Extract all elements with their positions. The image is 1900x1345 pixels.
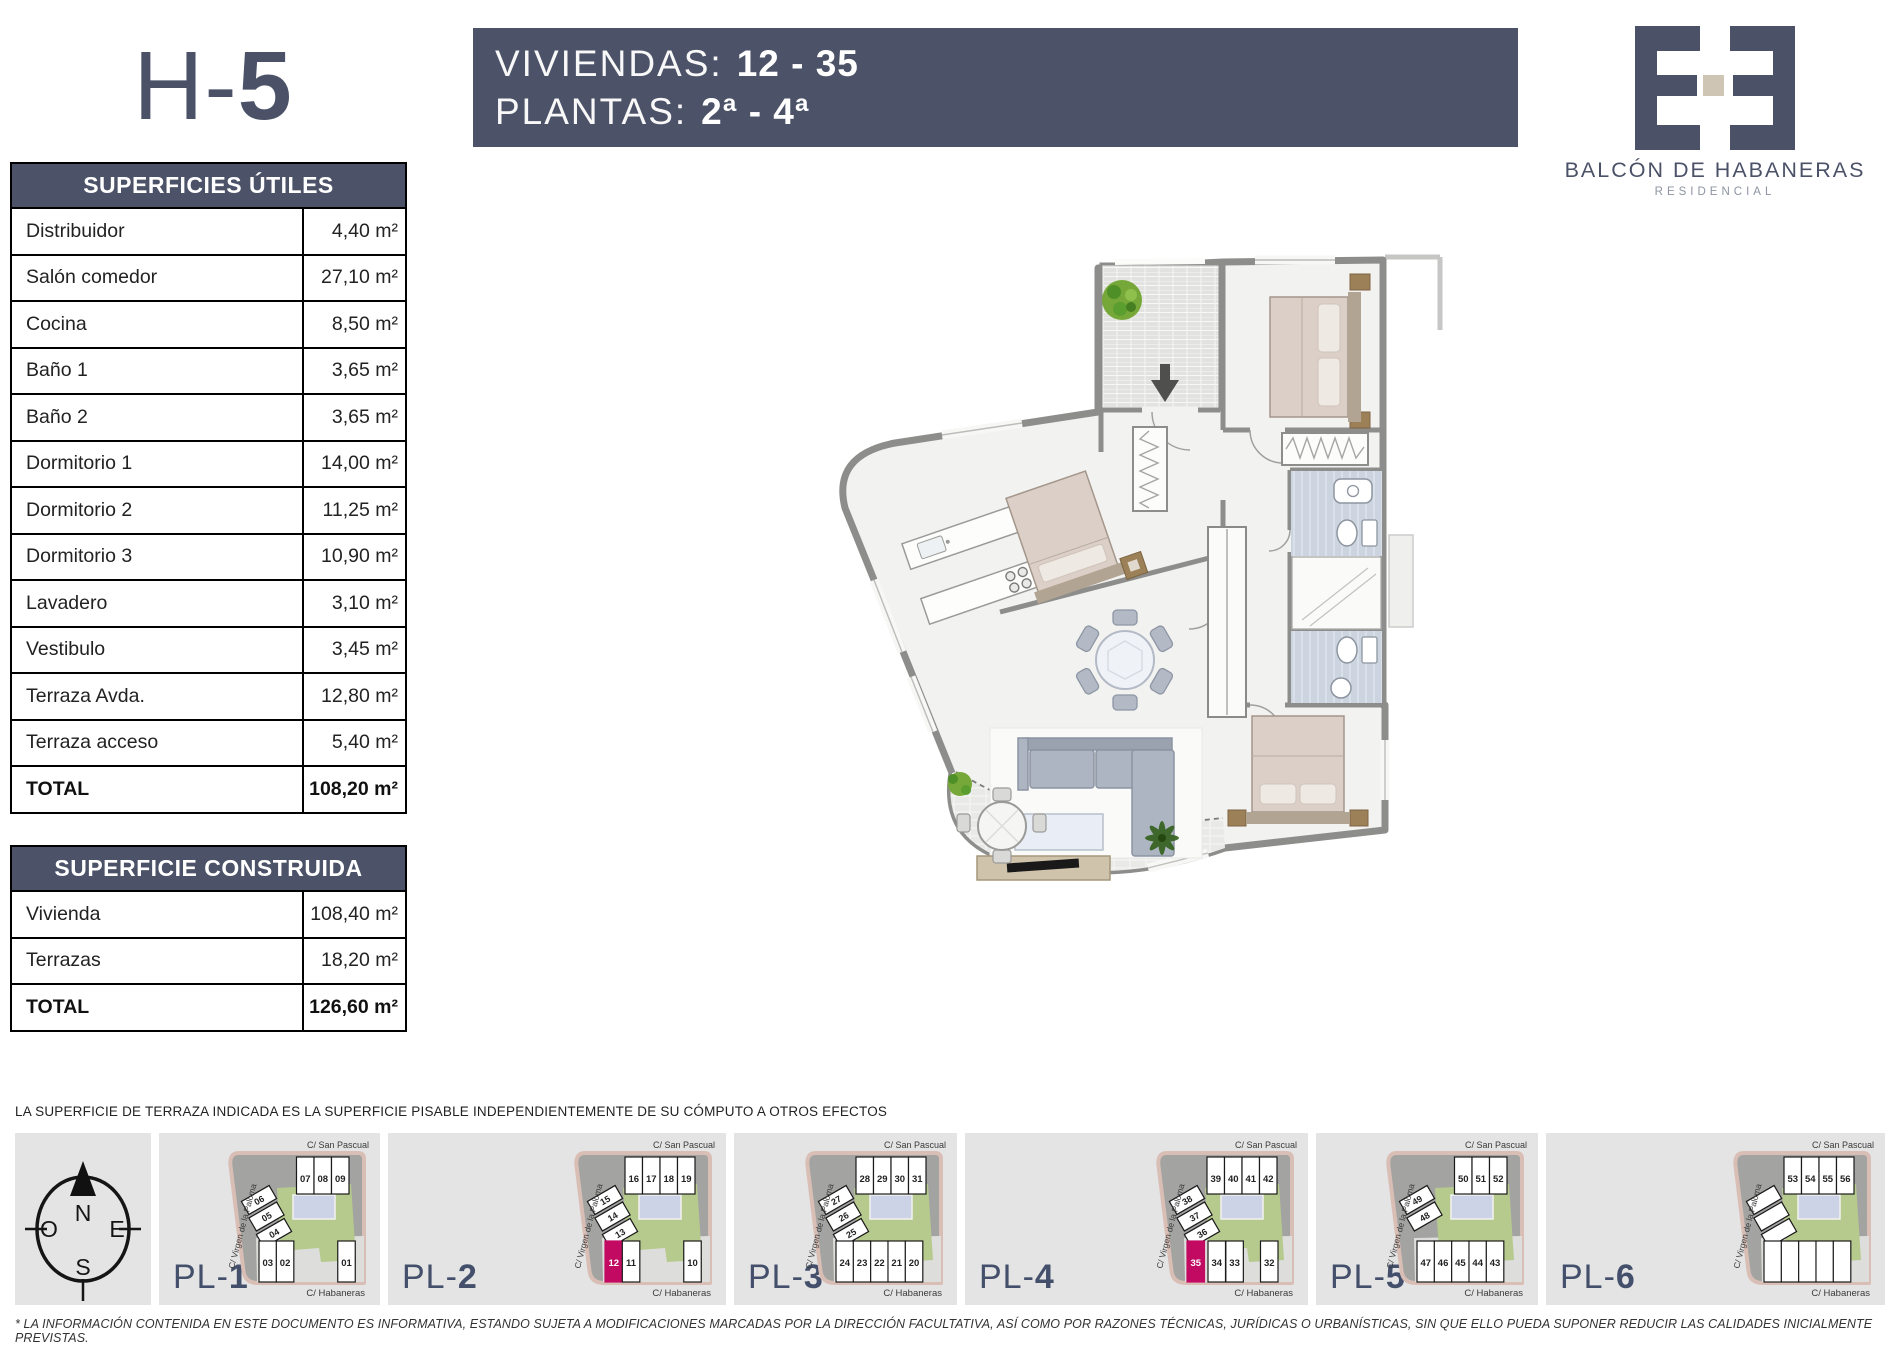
svg-text:24: 24: [839, 1258, 850, 1269]
plantas-label: PLANTAS:: [495, 91, 687, 132]
room-area-value: 10,90 m²: [302, 535, 405, 580]
banner-viviendas: VIVIENDAS:12 - 35: [495, 42, 1518, 86]
room-area-value: 8,50 m²: [302, 302, 405, 347]
svg-text:09: 09: [335, 1174, 346, 1185]
room-area-value: 18,20 m²: [302, 939, 405, 984]
viviendas-value: 12 - 35: [737, 43, 859, 84]
room-label: Salón comedor: [12, 256, 302, 301]
brand-logo-icon: [1635, 26, 1795, 150]
svg-text:33: 33: [1229, 1258, 1240, 1269]
svg-text:E: E: [109, 1216, 124, 1242]
svg-text:19: 19: [681, 1174, 692, 1185]
svg-text:C/ Habaneras: C/ Habaneras: [1464, 1288, 1523, 1299]
svg-text:20: 20: [909, 1258, 920, 1269]
plan-box-pl-3: PL-3 282930312726252423222120C/ San Pasc…: [734, 1133, 957, 1305]
svg-text:42: 42: [1263, 1174, 1274, 1185]
svg-text:21: 21: [891, 1258, 902, 1269]
site-plan-map: 53545556C/ San PascualC/ Virgen de la Pa…: [1728, 1138, 1880, 1300]
svg-text:08: 08: [317, 1174, 328, 1185]
table-row: Terraza acceso 5,40 m²: [12, 719, 405, 766]
svg-text:43: 43: [1490, 1258, 1501, 1269]
adjacent-structures: [1385, 257, 1440, 627]
svg-text:C/ San Pascual: C/ San Pascual: [1465, 1140, 1527, 1150]
table-row: Dormitorio 3 10,90 m²: [12, 533, 405, 580]
svg-text:C/ Habaneras: C/ Habaneras: [1811, 1288, 1870, 1299]
built-areas-table-body: Vivienda 108,40 m² Terrazas 18,20 m² TOT…: [12, 890, 405, 1030]
page-title: H-5: [118, 30, 308, 142]
banner-plantas: PLANTAS:2ª - 4ª: [495, 90, 1518, 134]
disclaimer: * LA INFORMACIÓN CONTENIDA EN ESTE DOCUM…: [15, 1317, 1890, 1345]
useful-areas-table-title: SUPERFICIES ÚTILES: [12, 164, 405, 207]
svg-text:C/ San Pascual: C/ San Pascual: [1235, 1140, 1297, 1150]
svg-text:22: 22: [874, 1258, 885, 1269]
room-label: Dormitorio 3: [12, 535, 302, 580]
header-banner: VIVIENDAS:12 - 35 PLANTAS:2ª - 4ª: [473, 28, 1518, 147]
closet: [1208, 527, 1246, 717]
svg-text:C/ Habaneras: C/ Habaneras: [306, 1288, 365, 1299]
built-areas-table: SUPERFICIE CONSTRUIDA Vivienda 108,40 m²…: [10, 845, 407, 1032]
brand-logo: BALCÓN DE HABANERAS RESIDENCIAL: [1555, 26, 1875, 198]
plan-box-pl-6: PL-6 53545556C/ San PascualC/ Virgen de …: [1546, 1133, 1885, 1305]
hall-wardrobe: [1133, 427, 1167, 511]
room-label: Terraza acceso: [12, 721, 302, 766]
tree-icon: [1102, 280, 1142, 320]
svg-text:44: 44: [1472, 1258, 1483, 1269]
svg-text:31: 31: [912, 1174, 923, 1185]
svg-text:40: 40: [1228, 1174, 1239, 1185]
svg-text:01: 01: [341, 1258, 352, 1269]
compass-icon: N O E S: [15, 1133, 151, 1305]
room-label: Vestibulo: [12, 628, 302, 673]
svg-text:C/ San Pascual: C/ San Pascual: [307, 1140, 369, 1150]
svg-text:29: 29: [877, 1174, 888, 1185]
bedroom-1-bed: [1270, 274, 1370, 428]
room-area-value: 3,65 m²: [302, 349, 405, 394]
svg-text:02: 02: [280, 1258, 291, 1269]
plan-box-pl-4: PL-4 3940414238373635343332C/ San Pascua…: [965, 1133, 1308, 1305]
table-row: Distribuidor 4,40 m²: [12, 207, 405, 254]
svg-text:56: 56: [1840, 1174, 1851, 1185]
room-label: TOTAL: [12, 767, 302, 812]
room-label: TOTAL: [12, 985, 302, 1030]
title-prefix: H-: [133, 31, 237, 140]
room-area-value: 3,45 m²: [302, 628, 405, 673]
table-row: Salón comedor 27,10 m²: [12, 254, 405, 301]
svg-text:55: 55: [1822, 1174, 1833, 1185]
room-area-value: 108,20 m²: [302, 767, 405, 812]
svg-text:C/ Habaneras: C/ Habaneras: [652, 1288, 711, 1299]
plan-label: PL-6: [1560, 1258, 1636, 1297]
viviendas-label: VIVIENDAS:: [495, 43, 723, 84]
room-label: Terraza Avda.: [12, 674, 302, 719]
room-area-value: 126,60 m²: [302, 985, 405, 1030]
svg-text:45: 45: [1455, 1258, 1466, 1269]
room-area-value: 12,80 m²: [302, 674, 405, 719]
svg-text:50: 50: [1458, 1174, 1469, 1185]
room-label: Baño 1: [12, 349, 302, 394]
svg-text:17: 17: [646, 1174, 657, 1185]
svg-text:32: 32: [1264, 1258, 1275, 1269]
room-label: Dormitorio 2: [12, 488, 302, 533]
palm-icon: [1145, 821, 1179, 855]
table-row: Terrazas 18,20 m²: [12, 937, 405, 984]
site-plan-map: 070809060504030201C/ San PascualC/ Virge…: [223, 1138, 375, 1300]
room-label: Vivienda: [12, 892, 302, 937]
plan-label: PL-4: [979, 1258, 1055, 1297]
plantas-value: 2ª - 4ª: [701, 91, 809, 132]
svg-text:47: 47: [1420, 1258, 1431, 1269]
room-area-value: 3,65 m²: [302, 395, 405, 440]
brand-subtitle: RESIDENCIAL: [1555, 186, 1875, 198]
coffee-table: [1015, 814, 1103, 850]
svg-text:53: 53: [1787, 1174, 1798, 1185]
bathroom-1: [1291, 471, 1382, 556]
room-label: Baño 2: [12, 395, 302, 440]
useful-areas-table: SUPERFICIES ÚTILES Distribuidor 4,40 m² …: [10, 162, 407, 814]
site-plan-map: 16171819151413121110C/ San PascualC/ Vir…: [569, 1138, 721, 1300]
plan-box-pl-1: PL-1 070809060504030201C/ San PascualC/ …: [159, 1133, 380, 1305]
room-area-value: 3,10 m²: [302, 581, 405, 626]
bush-icon: [948, 772, 972, 796]
svg-text:O: O: [40, 1216, 58, 1242]
room-area-value: 5,40 m²: [302, 721, 405, 766]
floor-plan: [690, 200, 1450, 900]
plan-label: PL-2: [402, 1258, 478, 1297]
plan-box-pl-5: PL-5 50515249484746454443C/ San PascualC…: [1316, 1133, 1538, 1305]
shower: [1292, 557, 1381, 629]
table-row: Baño 1 3,65 m²: [12, 347, 405, 394]
svg-text:12: 12: [608, 1258, 619, 1269]
table-row: TOTAL 126,60 m²: [12, 983, 405, 1030]
svg-text:03: 03: [262, 1258, 273, 1269]
svg-text:39: 39: [1210, 1174, 1221, 1185]
svg-text:C/ San Pascual: C/ San Pascual: [884, 1140, 946, 1150]
svg-text:C/ San Pascual: C/ San Pascual: [1812, 1140, 1874, 1150]
site-plan-map: 50515249484746454443C/ San PascualC/ Vir…: [1381, 1138, 1533, 1300]
terrace-note: LA SUPERFICIE DE TERRAZA INDICADA ES LA …: [15, 1104, 887, 1119]
room-area-value: 4,40 m²: [302, 209, 405, 254]
room-label: Dormitorio 1: [12, 442, 302, 487]
svg-text:28: 28: [859, 1174, 870, 1185]
svg-text:07: 07: [300, 1174, 311, 1185]
title-number: 5: [238, 31, 293, 140]
svg-text:34: 34: [1211, 1258, 1222, 1269]
useful-areas-table-body: Distribuidor 4,40 m² Salón comedor 27,10…: [12, 207, 405, 812]
room-label: Lavadero: [12, 581, 302, 626]
site-plan-map: 282930312726252423222120C/ San PascualC/…: [800, 1138, 952, 1300]
room-label: Terrazas: [12, 939, 302, 984]
svg-text:52: 52: [1493, 1174, 1504, 1185]
svg-text:C/ San Pascual: C/ San Pascual: [653, 1140, 715, 1150]
svg-text:10: 10: [687, 1258, 698, 1269]
plan-box-pl-2: PL-2 16171819151413121110C/ San PascualC…: [388, 1133, 726, 1305]
terrace-access: [1101, 261, 1220, 410]
svg-text:46: 46: [1438, 1258, 1449, 1269]
brand-name: BALCÓN DE HABANERAS: [1555, 158, 1875, 183]
room-area-value: 11,25 m²: [302, 488, 405, 533]
table-row: Cocina 8,50 m²: [12, 300, 405, 347]
svg-text:35: 35: [1190, 1258, 1201, 1269]
table-row: Vestibulo 3,45 m²: [12, 626, 405, 673]
table-row: Dormitorio 1 14,00 m²: [12, 440, 405, 487]
built-areas-table-title: SUPERFICIE CONSTRUIDA: [12, 847, 405, 890]
wardrobe: [1282, 433, 1368, 465]
room-area-value: 27,10 m²: [302, 256, 405, 301]
plans-strip: N O E S PL-1 070809060504030201C/ San Pa…: [15, 1133, 1885, 1305]
svg-text:18: 18: [663, 1174, 674, 1185]
table-row: Dormitorio 2 11,25 m²: [12, 486, 405, 533]
svg-text:30: 30: [894, 1174, 905, 1185]
table-row: Lavadero 3,10 m²: [12, 579, 405, 626]
table-row: Vivienda 108,40 m²: [12, 890, 405, 937]
room-area-value: 108,40 m²: [302, 892, 405, 937]
svg-text:54: 54: [1805, 1174, 1816, 1185]
table-row: TOTAL 108,20 m²: [12, 765, 405, 812]
svg-text:11: 11: [626, 1258, 637, 1269]
room-label: Distribuidor: [12, 209, 302, 254]
svg-text:C/ Habaneras: C/ Habaneras: [1234, 1288, 1293, 1299]
site-plan-map: 3940414238373635343332C/ San PascualC/ V…: [1151, 1138, 1303, 1300]
svg-text:41: 41: [1245, 1174, 1256, 1185]
svg-text:S: S: [75, 1254, 90, 1280]
table-row: Baño 2 3,65 m²: [12, 393, 405, 440]
svg-text:16: 16: [628, 1174, 639, 1185]
room-area-value: 14,00 m²: [302, 442, 405, 487]
compass-box: N O E S: [15, 1133, 151, 1305]
svg-text:23: 23: [857, 1258, 868, 1269]
room-label: Cocina: [12, 302, 302, 347]
bathroom-2: [1291, 631, 1382, 703]
svg-text:51: 51: [1475, 1174, 1486, 1185]
svg-text:C/ Habaneras: C/ Habaneras: [883, 1288, 942, 1299]
table-row: Terraza Avda. 12,80 m²: [12, 672, 405, 719]
svg-text:N: N: [75, 1200, 92, 1226]
